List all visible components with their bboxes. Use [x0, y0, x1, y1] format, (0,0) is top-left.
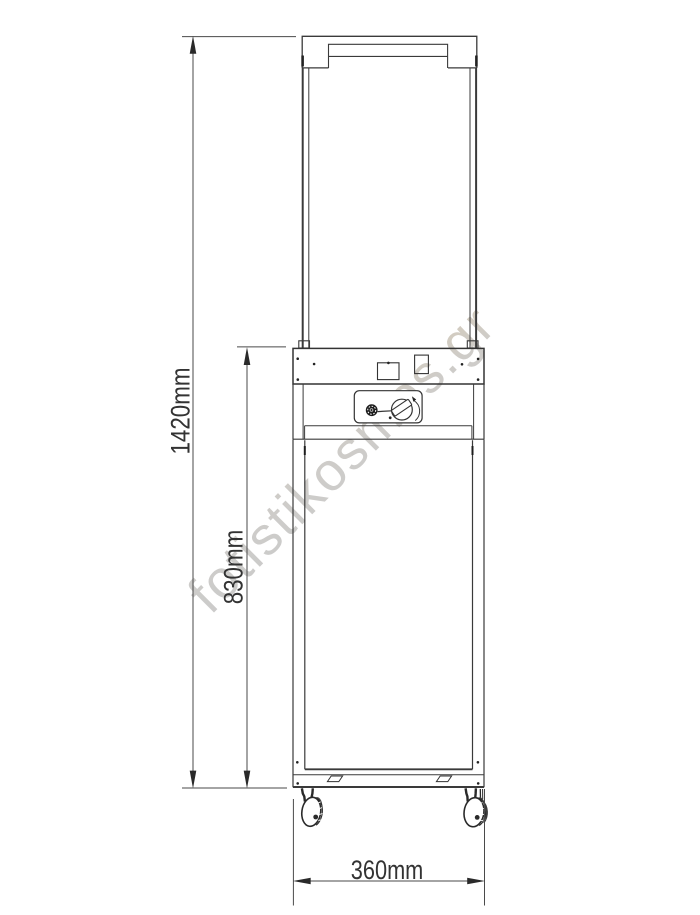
svg-text:1420mm: 1420mm	[166, 368, 196, 455]
svg-text:360mm: 360mm	[351, 855, 424, 885]
svg-text:830mm: 830mm	[219, 530, 249, 605]
